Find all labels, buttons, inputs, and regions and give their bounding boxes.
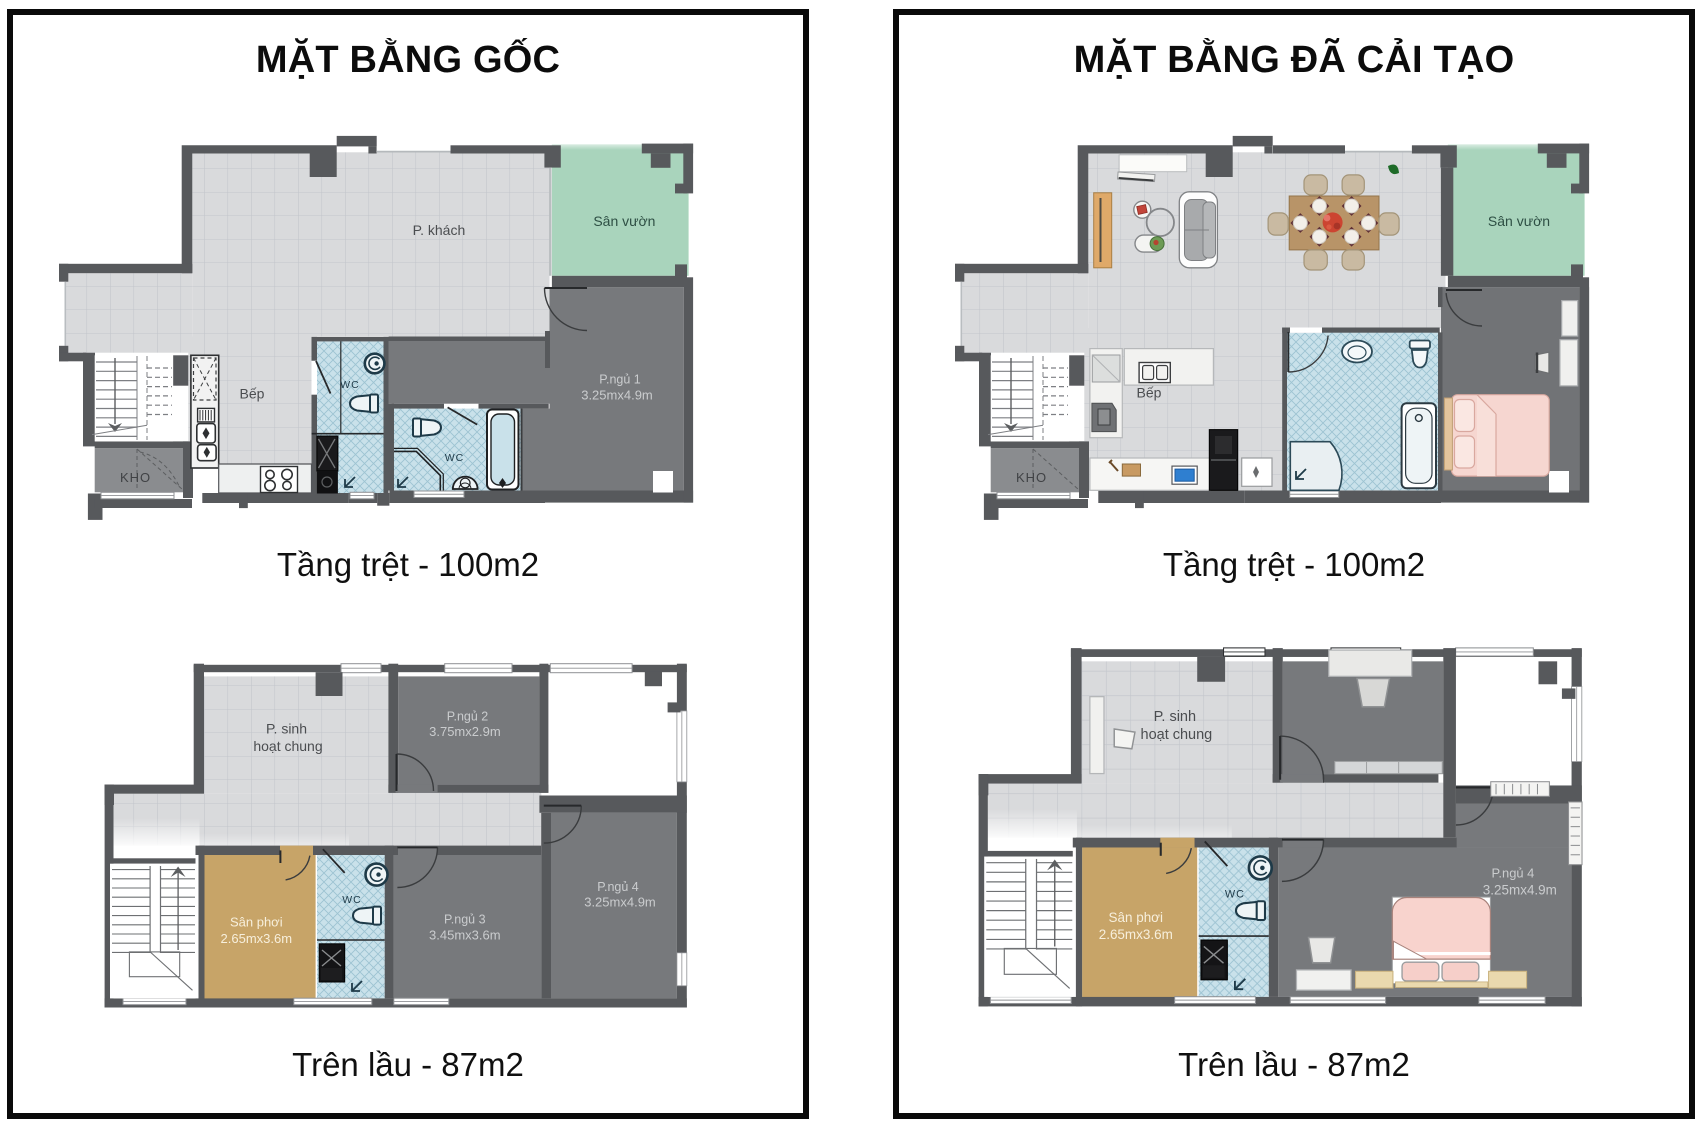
svg-text:P.ngủ 1: P.ngủ 1 [599,373,641,387]
svg-text:P. sinh: P. sinh [266,721,307,737]
svg-text:P.ngủ 4: P.ngủ 4 [597,880,639,894]
svg-text:2.65mx3.6m: 2.65mx3.6m [221,931,293,946]
svg-text:P. khách: P. khách [413,222,466,238]
svg-text:Sân vườn: Sân vườn [1488,213,1550,229]
svg-text:P. sinh: P. sinh [1154,709,1196,725]
svg-text:P.ngủ 4: P.ngủ 4 [1491,866,1534,881]
svg-text:KHO: KHO [1016,470,1047,485]
svg-text:hoạt chung: hoạt chung [1141,727,1213,743]
svg-text:3.45mx3.6m: 3.45mx3.6m [429,928,501,943]
svg-text:WC: WC [340,379,360,391]
svg-text:3.75mx2.9m: 3.75mx2.9m [429,724,501,739]
svg-text:P.ngủ 3: P.ngủ 3 [444,913,486,927]
svg-text:3.25mx4.9m: 3.25mx4.9m [584,895,656,910]
svg-text:hoạt chung: hoạt chung [253,738,322,754]
svg-text:Bếp: Bếp [240,386,265,402]
svg-text:3.25mx4.9m: 3.25mx4.9m [1483,882,1557,897]
svg-text:Sân vườn: Sân vườn [593,213,655,229]
svg-text:KHO: KHO [120,470,151,485]
svg-text:Bếp: Bếp [1137,385,1162,401]
svg-text:Sân phơi: Sân phơi [1109,910,1163,925]
svg-text:WC: WC [342,894,362,906]
svg-text:Sân phơi: Sân phơi [230,915,283,930]
svg-text:P.ngủ 2: P.ngủ 2 [447,710,489,724]
svg-text:2.65mx3.6m: 2.65mx3.6m [1099,927,1173,942]
svg-text:3.25mx4.9m: 3.25mx4.9m [581,388,653,403]
svg-text:WC: WC [1225,888,1245,900]
svg-text:WC: WC [445,452,465,464]
